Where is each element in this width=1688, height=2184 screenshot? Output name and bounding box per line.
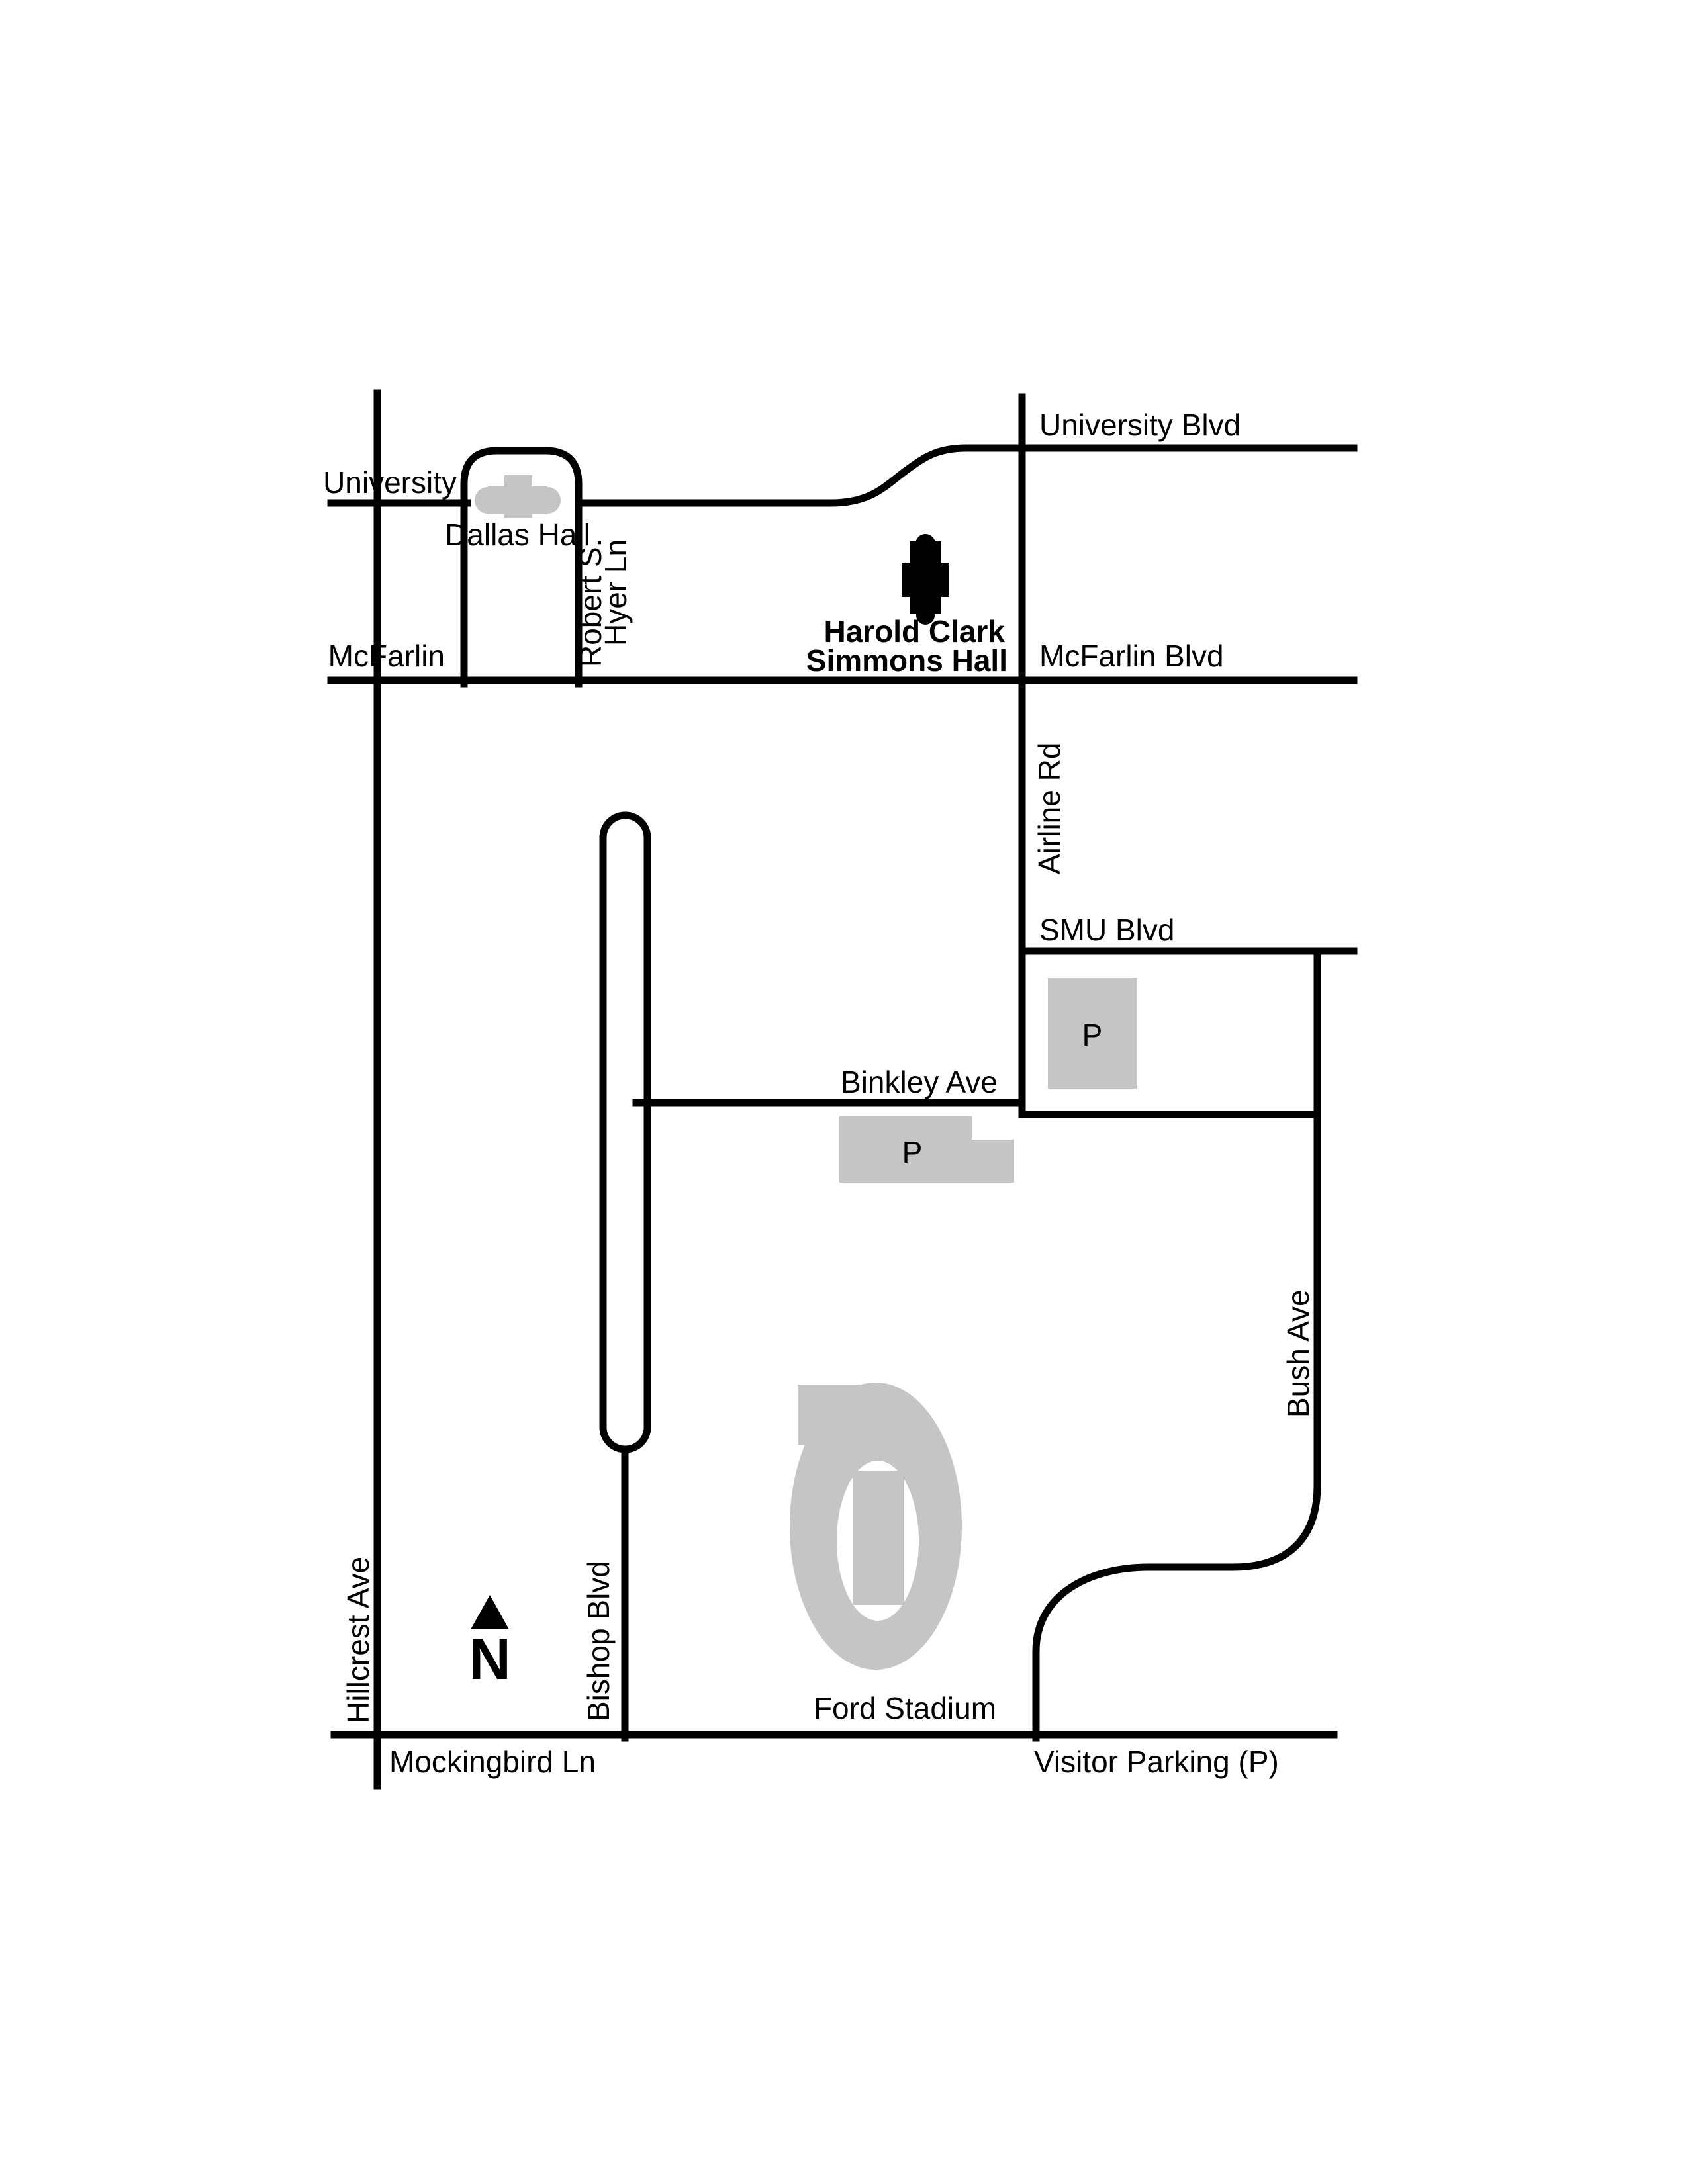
dallas-hall-building — [475, 475, 561, 518]
campus-map-canvas: N University Blvd University Dallas Hall… — [0, 0, 1688, 2184]
label-binkley-ave: Binkley Ave — [841, 1065, 998, 1099]
north-arrow-icon: N — [469, 1595, 511, 1692]
ford-stadium-building — [790, 1383, 962, 1670]
parking-lot-binkley-ave — [839, 1116, 1014, 1183]
label-robert-s-hyer-line2: Hyer Ln — [598, 539, 633, 646]
label-university: University — [323, 465, 457, 500]
smu-campus-map: N University Blvd University Dallas Hall… — [0, 0, 1688, 2184]
label-ford-stadium: Ford Stadium — [814, 1691, 996, 1725]
label-mcfarlin: McFarlin — [328, 639, 445, 673]
north-arrow-triangle — [471, 1595, 509, 1629]
simmons-hall-building — [902, 534, 949, 625]
north-arrow-label: N — [469, 1626, 511, 1692]
label-simmons-hall-line2: Simmons Hall — [806, 643, 1008, 678]
label-parking-p-smu: P — [1082, 1018, 1103, 1052]
label-visitor-parking-legend: Visitor Parking (P) — [1034, 1745, 1279, 1779]
label-university-blvd: University Blvd — [1039, 408, 1241, 442]
label-parking-p-binkley: P — [902, 1135, 923, 1169]
label-smu-blvd: SMU Blvd — [1039, 913, 1174, 947]
label-mockingbird-ln: Mockingbird Ln — [389, 1745, 596, 1779]
label-bush-ave: Bush Ave — [1281, 1289, 1315, 1418]
label-airline-rd: Airline Rd — [1032, 743, 1066, 874]
label-hillcrest-ave: Hillcrest Ave — [341, 1557, 375, 1723]
road-university-blvd — [579, 448, 1354, 503]
label-dallas-hall: Dallas Hall — [445, 518, 590, 552]
label-mcfarlin-blvd: McFarlin Blvd — [1039, 639, 1224, 673]
label-bishop-blvd: Bishop Blvd — [581, 1561, 616, 1721]
road-bishop-blvd-oval — [603, 815, 647, 1449]
